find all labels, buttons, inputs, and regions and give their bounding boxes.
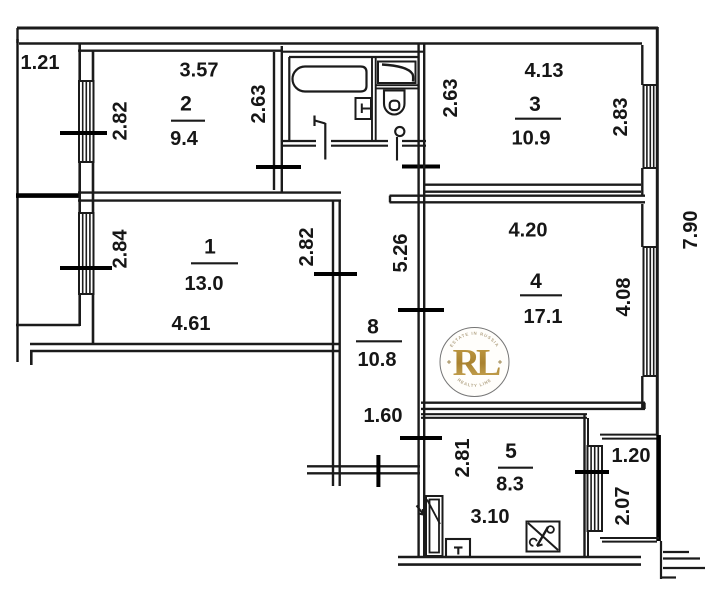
svg-text:2.07: 2.07 <box>612 487 634 526</box>
svg-text:2: 2 <box>180 93 192 116</box>
svg-text:5: 5 <box>505 440 517 463</box>
svg-text:4.20: 4.20 <box>509 220 548 242</box>
svg-text:2.82: 2.82 <box>296 228 318 267</box>
svg-text:8: 8 <box>367 316 379 339</box>
svg-text:5.26: 5.26 <box>390 234 412 273</box>
svg-text:1.60: 1.60 <box>364 405 403 427</box>
svg-text:1.20: 1.20 <box>612 445 651 467</box>
svg-text:10.9: 10.9 <box>512 128 551 150</box>
svg-text:2.63: 2.63 <box>248 85 270 124</box>
svg-text:2.63: 2.63 <box>440 79 462 118</box>
svg-text:2.84: 2.84 <box>110 229 132 269</box>
svg-text:7.90: 7.90 <box>680 211 702 250</box>
svg-text:2.81: 2.81 <box>452 439 474 478</box>
svg-text:3.57: 3.57 <box>180 60 219 82</box>
svg-text:1: 1 <box>204 236 216 259</box>
svg-text:2.83: 2.83 <box>610 98 632 137</box>
svg-text:1.21: 1.21 <box>21 52 60 74</box>
svg-text:2.82: 2.82 <box>110 102 132 141</box>
svg-text:4.61: 4.61 <box>172 313 211 335</box>
svg-text:17.1: 17.1 <box>524 306 563 328</box>
svg-text:3: 3 <box>529 93 541 116</box>
svg-text:8.3: 8.3 <box>496 474 524 496</box>
svg-text:4: 4 <box>530 270 542 293</box>
svg-text:9.4: 9.4 <box>170 128 199 150</box>
svg-text:13.0: 13.0 <box>185 273 224 295</box>
svg-text:4.13: 4.13 <box>525 60 564 82</box>
svg-text:3.10: 3.10 <box>471 506 510 528</box>
svg-text:10.8: 10.8 <box>358 349 397 371</box>
svg-text:4.08: 4.08 <box>613 278 635 317</box>
